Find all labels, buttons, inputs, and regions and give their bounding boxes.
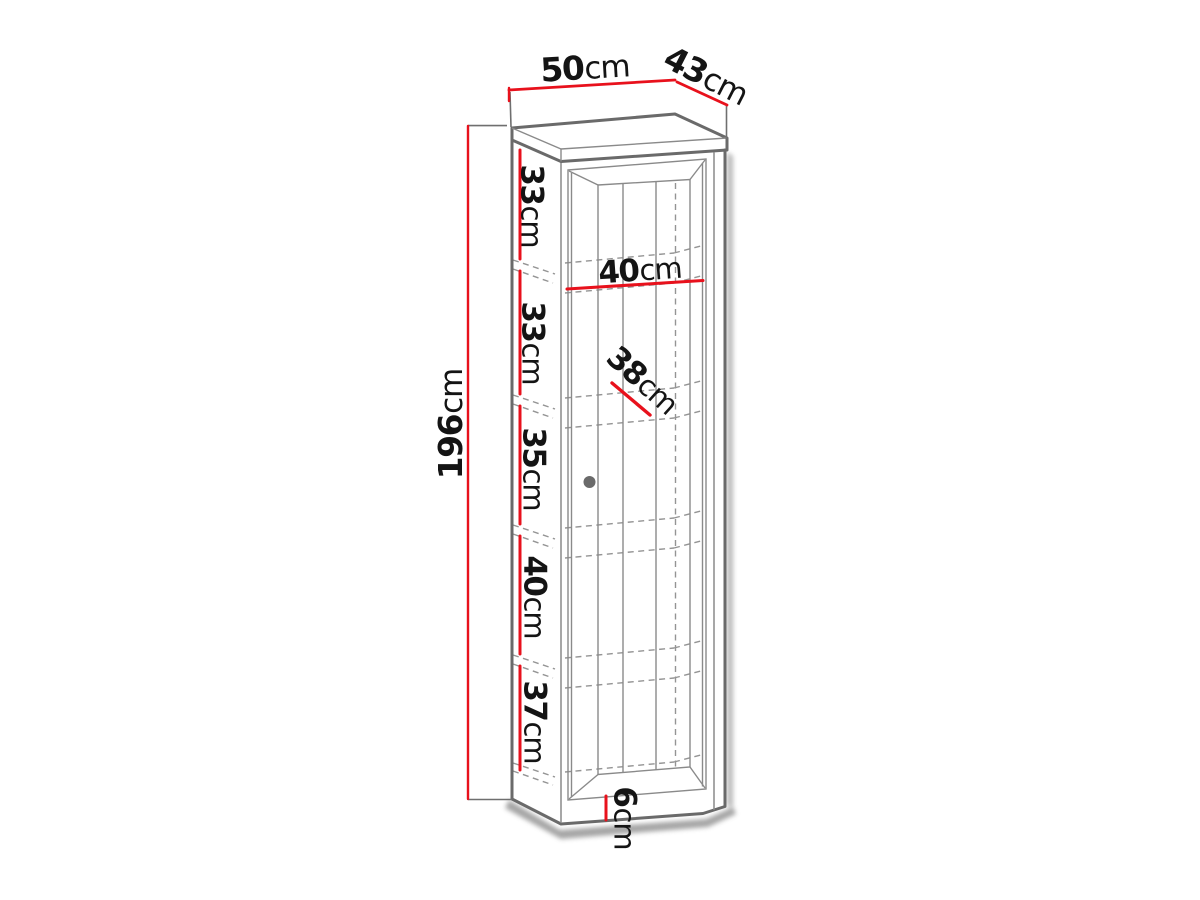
- dim-unit: cm: [518, 721, 552, 763]
- dim-label-section-4: 40cm: [519, 555, 550, 638]
- dim-value: 40: [597, 253, 640, 292]
- dimension-diagram: 50cm 43cm 196cm 33cm 33cm 35cm 40cm 37cm…: [0, 0, 1200, 900]
- dim-value: 33: [515, 301, 551, 341]
- dim-value: 37: [517, 680, 553, 720]
- dim-value: 50: [539, 48, 584, 90]
- dim-label-section-2: 33cm: [517, 301, 548, 384]
- dim-value: 33: [514, 164, 550, 204]
- dim-label-section-5: 37cm: [519, 680, 550, 763]
- dim-label-section-1: 33cm: [516, 164, 547, 247]
- cabinet-drawing: [0, 0, 1200, 900]
- dim-unit: cm: [515, 205, 549, 247]
- dim-value: 196: [431, 415, 470, 479]
- dim-value: 35: [516, 427, 552, 467]
- dim-label-inner-width: 40cm: [597, 253, 682, 290]
- dim-unit: cm: [638, 251, 682, 288]
- dim-unit: cm: [517, 468, 551, 510]
- door-knob: [584, 476, 596, 488]
- dim-unit: cm: [434, 369, 470, 414]
- dim-unit: cm: [518, 596, 552, 638]
- dim-label-plinth-height: 6cm: [609, 786, 640, 849]
- dim-label-section-3: 35cm: [518, 427, 549, 510]
- dim-label-top-width: 50cm: [539, 48, 630, 87]
- dim-unit: cm: [583, 48, 630, 87]
- dim-label-total-height: 196cm: [434, 369, 468, 480]
- dim-value: 40: [517, 555, 553, 595]
- dim-value: 6: [607, 786, 643, 806]
- dim-unit: cm: [608, 807, 642, 849]
- dim-unit: cm: [516, 342, 550, 384]
